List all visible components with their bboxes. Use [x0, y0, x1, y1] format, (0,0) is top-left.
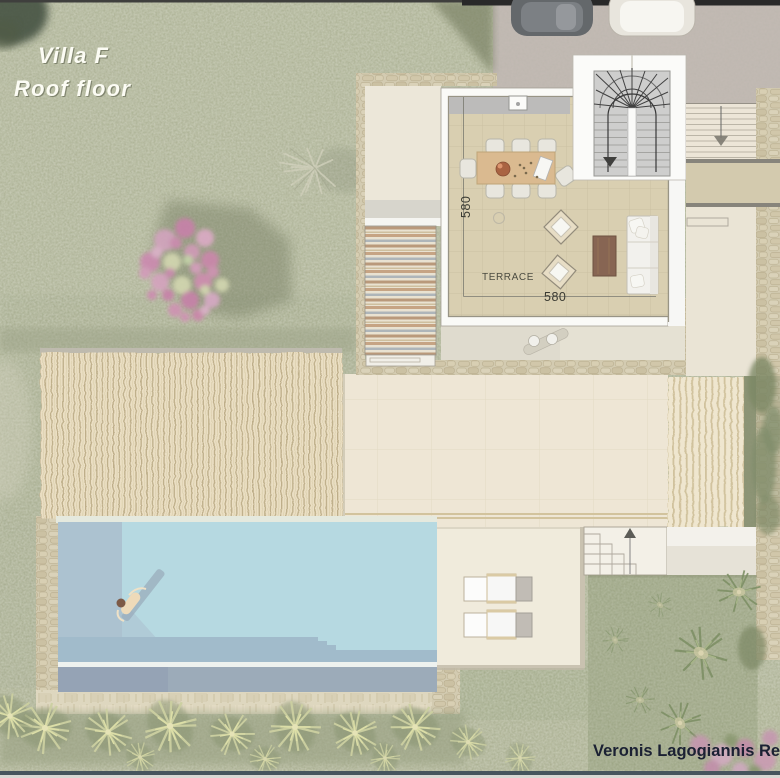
- svg-text:580: 580: [544, 290, 566, 304]
- svg-text:Veronis Lagogiannis Re: Veronis Lagogiannis Re: [593, 742, 780, 760]
- svg-text:Villa F: Villa F: [38, 43, 109, 68]
- svg-text:TERRACE: TERRACE: [482, 272, 534, 283]
- svg-text:Roof floor: Roof floor: [14, 76, 131, 101]
- svg-text:580: 580: [459, 196, 473, 218]
